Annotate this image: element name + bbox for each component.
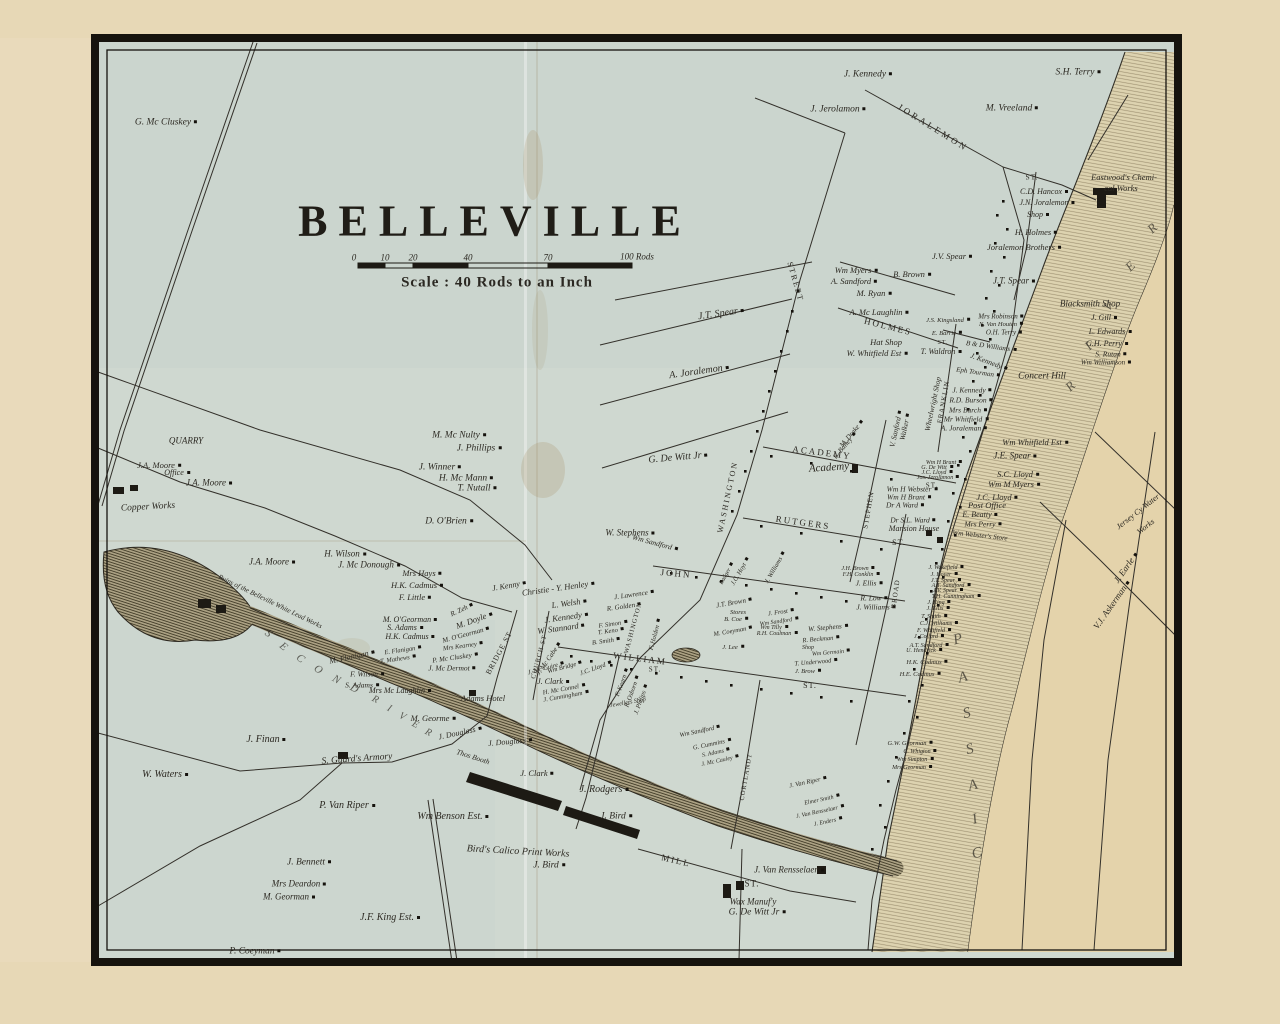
place-label: S. Guard's Armory [321, 753, 392, 767]
letter-label: S [262, 628, 273, 640]
letter-label: N [330, 673, 342, 686]
name-label: M. Georman [263, 893, 315, 902]
letter-label: S [961, 706, 972, 722]
place-label: Bird's Calico Print Works [466, 844, 569, 859]
name-label: J.A. Moore [186, 479, 232, 488]
street-label: ST. [926, 483, 938, 490]
name-label: C.J. Williams [920, 621, 958, 627]
name-label: J. Van Riper [789, 776, 827, 790]
name-label: J. Mc Donough [338, 561, 400, 570]
street-label: CORTLANDT [740, 753, 755, 801]
place-label: Adams Hotel [461, 694, 505, 703]
name-label: J. Bird [600, 812, 632, 822]
name-label: J.E. Spear [993, 452, 1036, 461]
name-label: J. Phillips [457, 444, 502, 454]
name-label: W. Stephens [808, 623, 848, 633]
name-label: J. Enders [813, 816, 842, 828]
name-label: Mrs Burch [949, 406, 987, 414]
letter-label: R [370, 694, 380, 706]
place-label: Eastwood's Chemi- [1091, 173, 1157, 182]
name-label: M. Ryan [857, 289, 892, 298]
name-label: F. Holden [649, 619, 663, 651]
name-label: J.C. Lloyd [579, 660, 612, 677]
name-label: Mrs Hays [402, 569, 441, 578]
name-label: H. Wilson [324, 550, 366, 559]
name-label: Wm Benson Est. [417, 812, 488, 822]
name-label: Dr A Ward [886, 501, 924, 509]
name-label: F. Wilson [350, 670, 384, 678]
map-canvas: BELLEVILLE Scale : 40 Rods to an Inch J.… [0, 0, 1280, 1024]
letter-label: S [964, 742, 975, 758]
letter-label: V [397, 711, 407, 723]
letter-label: E [1123, 259, 1138, 274]
name-label: Jos. Jerolamon [917, 475, 959, 481]
name-label: H.E. Cadmus [900, 672, 941, 679]
name-label: J. Rodgers [580, 785, 629, 795]
letter-label: C [294, 652, 307, 665]
name-label: J.H. Brown [841, 566, 874, 572]
name-label: Wm Sandford [631, 533, 678, 552]
letter-label: R [1145, 221, 1160, 236]
name-label: M. Flanigan [329, 648, 376, 665]
name-label: J.V. Spear [932, 252, 972, 261]
name-label: O.H. Terry [986, 330, 1022, 337]
street-label: JORALEMON [896, 103, 970, 154]
name-label: A. Sandford [831, 277, 877, 286]
letter-label: E [277, 641, 289, 654]
name-label: E. Barrie [932, 331, 962, 338]
name-label: T. Smith [921, 614, 947, 620]
name-label: Wm M Myers [988, 480, 1040, 489]
tick-label: 0 [352, 254, 357, 263]
name-label: J. Van Rensselaer [754, 866, 824, 875]
place-label: Stores [730, 610, 746, 617]
street-label: STREET [785, 261, 804, 303]
name-label: G. De Witt Jr [729, 908, 786, 918]
name-label: H.K. Cadmus [385, 633, 434, 641]
name-label: W. Waters [142, 770, 188, 780]
place-label: Thos Booth [455, 748, 490, 766]
tick-label: 40 [464, 254, 473, 263]
letter-label: I [385, 704, 393, 714]
name-label: W. Whitfield Est [847, 349, 908, 358]
tick-label: 10 [381, 254, 390, 263]
name-label: C.D. Hancox [1020, 188, 1068, 196]
name-label: J.N. Joralemon [1019, 199, 1074, 207]
name-label: U. Hendrick [906, 648, 942, 654]
name-label: L. Edwards [1089, 328, 1132, 336]
street-label: BROAD [890, 579, 901, 609]
name-label: Mrs Perry [964, 520, 1001, 528]
name-label: N. Van Houten [979, 322, 1023, 329]
name-label: J. Douglass [488, 736, 532, 748]
name-label: J. Bird [533, 861, 565, 871]
name-label: R.H. Coulman [757, 631, 798, 637]
name-label: G. De Witt Jr [648, 450, 708, 465]
tick-label: 20 [409, 254, 418, 263]
place-label: Ruins of the Belleville White Lead Works [217, 574, 323, 630]
street-label: ST. [803, 682, 817, 690]
place-label: cal Works [1104, 184, 1137, 193]
name-label: E. Beatty [962, 511, 997, 519]
name-label: H.K. Cadmus [391, 581, 443, 590]
name-label: S.C. Lloyd [997, 470, 1039, 479]
street-label: WILLIAM [613, 651, 668, 667]
name-label: J. Winner [419, 463, 461, 473]
name-label: Mrs Georman [892, 765, 932, 771]
name-label: J. Williams [764, 551, 787, 584]
street-label: BRIDGE ST [485, 630, 514, 676]
name-label: J.T. Brown [716, 596, 753, 609]
street-label: STEPHEN [862, 491, 875, 529]
name-label: J.A. Moore [249, 558, 295, 567]
place-label: Concert Hill [1018, 372, 1066, 382]
name-label: J.T. Spear [697, 306, 744, 322]
place-label: QUARRY [169, 437, 203, 446]
name-label: J.C. Hoyt [731, 557, 752, 587]
name-label: S.H. Terry [1056, 68, 1101, 78]
tick-label: 70 [544, 254, 553, 263]
name-label: Office [164, 469, 190, 477]
scale-caption: Scale : 40 Rods to an Inch [401, 275, 593, 292]
name-label: G. Mc Cluskey [135, 118, 197, 128]
name-label: Mr Whitfield [944, 415, 989, 423]
street-label: JOHN [660, 568, 692, 580]
name-label: B. Coe [724, 617, 748, 624]
name-label: A. Mc Laughlin [849, 308, 908, 317]
name-label: J. Finan [246, 735, 285, 745]
name-label: M. Vreeland [986, 104, 1038, 114]
name-label: J. Kennedy [952, 386, 991, 394]
name-label: Wm Myers [835, 266, 878, 275]
street-label: ST. [892, 539, 906, 547]
name-label: R. Beckman [802, 635, 839, 645]
name-label: J. Lee [722, 645, 744, 652]
letter-label: A [967, 778, 980, 795]
letter-label: R [423, 727, 433, 739]
letter-label: A [957, 670, 970, 687]
name-label: J.T. Spear [993, 277, 1035, 286]
street-label: MILL [660, 853, 691, 869]
name-label: B. Brown [893, 270, 931, 279]
name-label: M. Mc Nulty [432, 431, 486, 441]
name-label: M. Coeyman [713, 625, 753, 638]
name-label: R.D. Burson [949, 396, 992, 404]
name-label: A. Joraleman [941, 424, 987, 432]
name-label: J. Jerolamon [810, 105, 865, 115]
name-label: Mrs Mc Laughlin [369, 687, 431, 695]
street-label: ST. [744, 880, 759, 889]
name-label: J.F. King Est. [360, 913, 420, 923]
place-label: Wax Manuf'y [730, 898, 777, 907]
name-label: J. Brow [795, 669, 821, 676]
name-label: D. O'Brien [425, 517, 473, 527]
name-label: Wm Whitfield Est [1002, 438, 1068, 447]
name-label: F.H. Conklin [843, 572, 880, 578]
name-label: G.W. Georman [888, 741, 933, 748]
name-label: J.S. Kingsland [926, 318, 970, 325]
name-label: H.K. Cadmus [906, 660, 947, 667]
name-label: J. Ellis [856, 579, 883, 587]
name-label: P. Coeyman [229, 947, 280, 957]
name-label: P. Van Riper [319, 801, 375, 811]
name-label: A. Joralemon [669, 363, 730, 381]
street-label: RUTGERS [775, 515, 831, 532]
place-label: Mansion House [889, 525, 939, 533]
name-label: Mrs Deardon [272, 880, 326, 889]
name-label: L. Welsh [551, 596, 587, 609]
place-label: Copper Works [121, 502, 176, 514]
street-label: ST. [937, 340, 948, 346]
map-title: BELLEVILLE [298, 196, 692, 247]
place-label: Works [1136, 518, 1156, 536]
name-label: Shop [1027, 211, 1049, 219]
name-label: J. Clark [520, 769, 553, 778]
name-label: Wm Williamson [1081, 360, 1131, 367]
name-label: J. Gill [1091, 314, 1117, 322]
place-label: Post Office [968, 501, 1006, 510]
name-label: T. Nutall [457, 484, 496, 494]
name-label: J. Bennett [287, 858, 331, 868]
name-label: J. Wakefield [928, 565, 963, 571]
letter-label: C [970, 845, 984, 862]
name-label: C. Whigton [903, 749, 936, 755]
name-label: Wm Germain [812, 648, 851, 657]
name-label: J. Mc Dermot [428, 664, 475, 672]
name-label: J. Collard [914, 634, 944, 640]
name-label: R. Low [860, 594, 887, 602]
street-label: HOLMES [863, 317, 913, 338]
name-label: Wm Simpton [897, 757, 934, 763]
letter-label: P [952, 632, 965, 649]
letter-label: R [1063, 379, 1078, 394]
name-label: S. Adams [387, 624, 423, 632]
name-label: Wm Sandford [679, 725, 721, 740]
place-label: Hat Shop [870, 338, 902, 347]
name-label: S. Rutan [1095, 350, 1126, 358]
name-label: Christie - Y. Henley [521, 579, 594, 598]
place-label: Shop [802, 645, 814, 651]
name-label: Mrs Robinson [978, 314, 1023, 321]
tick-label: 100 Rods [620, 253, 654, 262]
street-label: ST. [649, 667, 661, 674]
name-label: J. Douglass [438, 725, 482, 742]
letter-label: O [312, 663, 325, 677]
name-label: T. Waldron [921, 348, 962, 356]
name-label: Joralemon Brothers [987, 243, 1061, 252]
place-label: Wm Webster's Store [952, 530, 1008, 543]
place-label: Academy [809, 461, 850, 475]
name-label: V.J. Askerman [1092, 579, 1132, 631]
letter-label: I [971, 812, 980, 828]
name-label: H. Holmes [1015, 228, 1057, 237]
name-label: Dr S.L. Ward [890, 516, 935, 524]
map-labels-layer: BELLEVILLE Scale : 40 Rods to an Inch J.… [0, 0, 1280, 1024]
street-label: ST. [1025, 173, 1038, 181]
name-label: T. Keno [598, 627, 625, 637]
name-label: J. Kennedy [844, 70, 892, 80]
name-label: J. Ellis [927, 606, 950, 612]
name-label: J. Lawrence [614, 589, 655, 601]
name-label: F. Little [399, 593, 431, 602]
name-label: B. Smith [592, 637, 621, 647]
name-label: T. Underwood [794, 658, 837, 668]
street-label: WASHINGTON [716, 460, 739, 533]
